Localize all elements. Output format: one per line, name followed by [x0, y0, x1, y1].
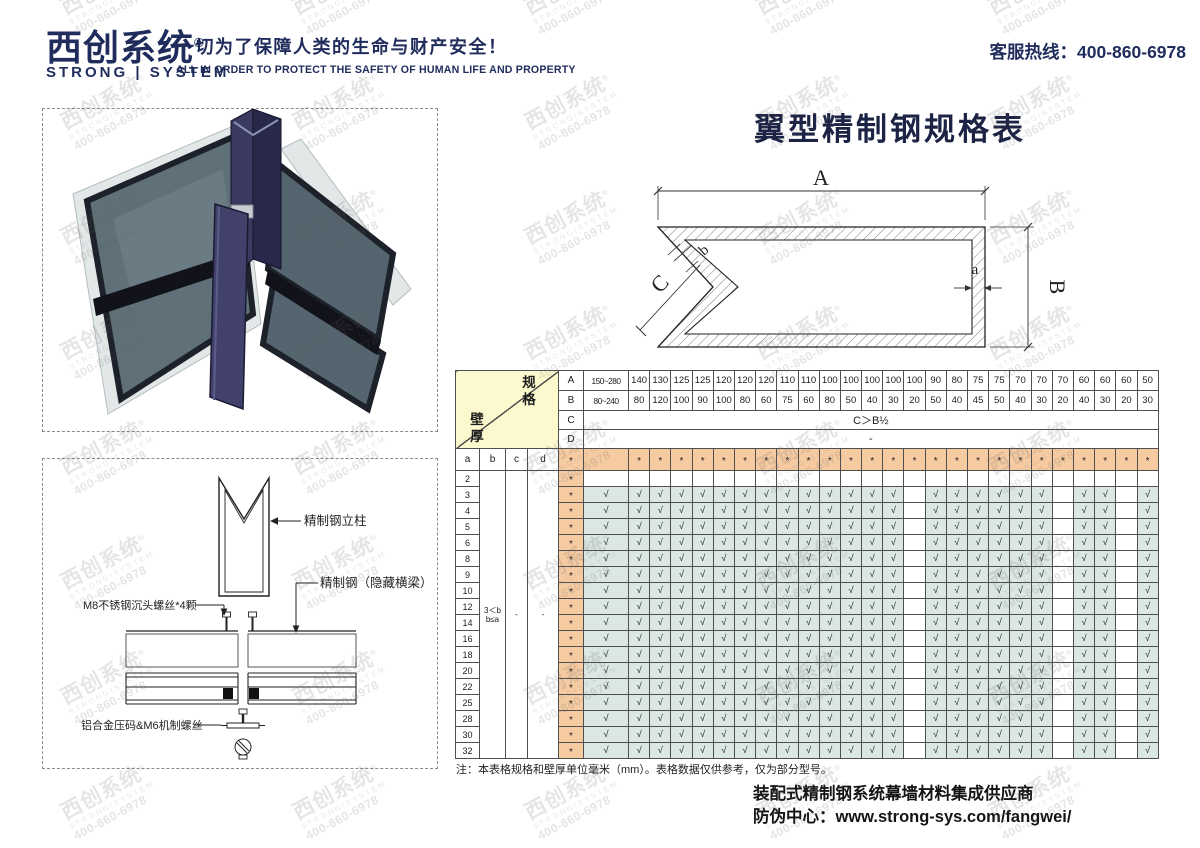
check-cell: √: [1137, 567, 1158, 583]
dim-B-value: 60: [798, 391, 819, 411]
row-label-B: B: [559, 391, 584, 411]
check-cell: √: [1095, 519, 1116, 535]
check-cell: √: [862, 583, 883, 599]
check-cell: √: [989, 519, 1010, 535]
check-cell: √: [1031, 743, 1052, 759]
check-cell: √: [671, 695, 692, 711]
check-cell: √: [777, 711, 798, 727]
empty-cell: [904, 615, 925, 631]
empty-cell: [1116, 567, 1137, 583]
check-cell: √: [650, 567, 671, 583]
dim-A-value: 50: [1137, 371, 1158, 391]
check-cell: √: [862, 535, 883, 551]
check-cell: √: [650, 551, 671, 567]
corner-wall-label: 壁厚: [469, 411, 485, 445]
check-cell: √: [883, 679, 904, 695]
check-cell: √: [862, 727, 883, 743]
check-cell: √: [862, 567, 883, 583]
check-cell: √: [1095, 583, 1116, 599]
check-cell: √: [1010, 503, 1031, 519]
dim-B-value: 20: [1052, 391, 1073, 411]
check-cell: √: [756, 503, 777, 519]
row-label-C: C: [559, 411, 584, 430]
check-cell: √: [756, 487, 777, 503]
check-cell: √: [692, 583, 713, 599]
check-cell: √: [713, 679, 734, 695]
check-cell: √: [629, 551, 650, 567]
check-cell: √: [1073, 551, 1094, 567]
check-cell: √: [883, 599, 904, 615]
check-cell: √: [1031, 679, 1052, 695]
check-cell: √: [925, 519, 946, 535]
check-cell: √: [713, 519, 734, 535]
dim-B-value: 40: [946, 391, 967, 411]
check-cell: √: [1095, 535, 1116, 551]
thickness-header: d: [528, 449, 559, 471]
check-cell: √: [1095, 727, 1116, 743]
check-cell: √: [819, 503, 840, 519]
check-cell: √: [584, 567, 629, 583]
check-cell: √: [819, 695, 840, 711]
check-cell: √: [1031, 535, 1052, 551]
dim-A-value: 120: [734, 371, 755, 391]
star-cell: *: [559, 535, 584, 551]
check-cell: √: [777, 695, 798, 711]
check-cell: √: [584, 679, 629, 695]
empty-cell: [1116, 583, 1137, 599]
check-cell: √: [883, 695, 904, 711]
empty-cell: [968, 471, 989, 487]
check-cell: √: [629, 679, 650, 695]
check-cell: √: [946, 711, 967, 727]
thickness-header: b: [480, 449, 506, 471]
check-cell: √: [968, 535, 989, 551]
footer-line2: 防伪中心：www.strong-sys.com/fangwei/: [753, 806, 1071, 829]
check-cell: √: [819, 615, 840, 631]
empty-cell: [692, 471, 713, 487]
empty-cell: [1116, 535, 1137, 551]
check-cell: √: [819, 647, 840, 663]
check-cell: √: [840, 679, 861, 695]
check-cell: √: [671, 503, 692, 519]
star-cell: *: [862, 449, 883, 471]
check-cell: √: [650, 743, 671, 759]
star-cell: *: [559, 487, 584, 503]
check-cell: √: [1095, 599, 1116, 615]
check-cell: √: [650, 711, 671, 727]
empty-cell: [904, 631, 925, 647]
check-cell: √: [584, 503, 629, 519]
dim-B-value: 20: [904, 391, 925, 411]
dim-A-value: 70: [1010, 371, 1031, 391]
check-cell: √: [925, 615, 946, 631]
check-cell: √: [692, 551, 713, 567]
check-cell: √: [756, 711, 777, 727]
check-cell: √: [946, 599, 967, 615]
check-cell: √: [1095, 615, 1116, 631]
watermark: 西创系统®STRONGISYSTEM400-860-6978: [58, 760, 162, 842]
check-cell: √: [1073, 663, 1094, 679]
label-screw: M8不锈钢沉头螺丝*4颗: [83, 599, 197, 612]
star-cell: *: [904, 449, 925, 471]
empty-cell: [1116, 679, 1137, 695]
check-cell: √: [1095, 695, 1116, 711]
check-cell: √: [862, 711, 883, 727]
dim-B-value: 80~240: [584, 391, 629, 411]
check-cell: √: [777, 551, 798, 567]
star-cell: *: [559, 449, 584, 471]
check-cell: √: [883, 727, 904, 743]
star-cell: *: [559, 503, 584, 519]
thickness-a-value: 28: [456, 711, 480, 727]
empty-cell: [1052, 599, 1073, 615]
star-cell: *: [559, 567, 584, 583]
empty-cell: [1095, 471, 1116, 487]
thickness-a-value: 2: [456, 471, 480, 487]
check-cell: √: [883, 583, 904, 599]
empty-cell: [1137, 471, 1158, 487]
check-cell: √: [968, 567, 989, 583]
empty-cell: [904, 743, 925, 759]
empty-cell: [734, 471, 755, 487]
star-cell: *: [925, 449, 946, 471]
check-cell: √: [734, 647, 755, 663]
check-cell: √: [734, 743, 755, 759]
d-constraint: -: [528, 471, 559, 759]
check-cell: √: [584, 663, 629, 679]
c-constraint: -: [506, 471, 528, 759]
watermark: 西创系统®STRONGISYSTEM400-860-6978: [290, 760, 394, 842]
dim-label-C: C: [645, 270, 673, 298]
check-cell: √: [584, 711, 629, 727]
check-cell: √: [1031, 727, 1052, 743]
empty-cell: [1031, 471, 1052, 487]
check-cell: √: [777, 743, 798, 759]
check-cell: √: [734, 535, 755, 551]
check-cell: √: [692, 599, 713, 615]
dim-A-value: 100: [840, 371, 861, 391]
check-cell: √: [840, 631, 861, 647]
star-cell: *: [946, 449, 967, 471]
dim-B-value: 80: [734, 391, 755, 411]
curtainwall-3d-illustration: [43, 109, 437, 431]
check-cell: √: [1095, 679, 1116, 695]
empty-cell: [1010, 471, 1031, 487]
check-cell: √: [968, 615, 989, 631]
empty-cell: [989, 471, 1010, 487]
check-cell: √: [584, 631, 629, 647]
star-cell: *: [629, 449, 650, 471]
check-cell: √: [1073, 615, 1094, 631]
check-cell: √: [1010, 535, 1031, 551]
check-cell: √: [840, 727, 861, 743]
slogan-en: ALL IN ORDER TO PROTECT THE SAFETY OF HU…: [176, 64, 576, 76]
dim-B-value: 30: [883, 391, 904, 411]
empty-cell: [904, 487, 925, 503]
empty-cell: [1052, 711, 1073, 727]
check-cell: √: [883, 647, 904, 663]
check-cell: √: [777, 727, 798, 743]
check-cell: √: [756, 647, 777, 663]
check-cell: √: [968, 631, 989, 647]
check-cell: √: [1031, 599, 1052, 615]
star-cell: *: [883, 449, 904, 471]
check-cell: √: [1095, 663, 1116, 679]
section-detail-drawing: 精制钢立柱 精制钢（隐藏横梁） M8不锈钢沉头螺丝*4颗: [43, 459, 437, 765]
dim-B-value: 80: [819, 391, 840, 411]
check-cell: √: [777, 519, 798, 535]
check-cell: √: [629, 615, 650, 631]
check-cell: √: [756, 679, 777, 695]
check-cell: √: [713, 695, 734, 711]
check-cell: √: [1095, 487, 1116, 503]
dim-A-value: 60: [1073, 371, 1094, 391]
check-cell: √: [734, 551, 755, 567]
dim-B-value: 40: [1073, 391, 1094, 411]
dim-A-value: 90: [925, 371, 946, 391]
check-cell: √: [713, 631, 734, 647]
check-cell: √: [968, 583, 989, 599]
dim-B-value: 30: [1137, 391, 1158, 411]
dim-A-value: 110: [798, 371, 819, 391]
slogan-cn: 一切为了保障人类的生命与财产安全！: [176, 33, 576, 59]
check-cell: √: [819, 663, 840, 679]
check-cell: √: [1010, 599, 1031, 615]
empty-cell: [584, 471, 629, 487]
check-cell: √: [1073, 679, 1094, 695]
check-cell: √: [584, 743, 629, 759]
empty-cell: [1052, 679, 1073, 695]
check-cell: √: [989, 535, 1010, 551]
check-cell: √: [756, 727, 777, 743]
star-cell: *: [559, 551, 584, 567]
empty-cell: [1052, 743, 1073, 759]
check-cell: √: [756, 535, 777, 551]
check-cell: √: [862, 615, 883, 631]
star-cell: *: [559, 647, 584, 663]
empty-cell: [1052, 583, 1073, 599]
check-cell: √: [925, 727, 946, 743]
check-cell: √: [1010, 615, 1031, 631]
check-cell: √: [692, 695, 713, 711]
check-cell: √: [650, 519, 671, 535]
check-cell: √: [692, 647, 713, 663]
dim-B-value: 100: [713, 391, 734, 411]
check-cell: √: [989, 743, 1010, 759]
thickness-a-value: 25: [456, 695, 480, 711]
section-detail-box: 精制钢立柱 精制钢（隐藏横梁） M8不锈钢沉头螺丝*4颗: [42, 458, 438, 769]
check-cell: √: [819, 599, 840, 615]
check-cell: √: [1137, 519, 1158, 535]
star-cell: *: [559, 727, 584, 743]
check-cell: √: [925, 711, 946, 727]
check-cell: √: [1010, 743, 1031, 759]
check-cell: √: [1010, 551, 1031, 567]
check-cell: √: [968, 679, 989, 695]
star-cell: *: [1116, 449, 1137, 471]
check-cell: √: [883, 615, 904, 631]
empty-cell: [1052, 727, 1073, 743]
star-cell: *: [989, 449, 1010, 471]
check-cell: √: [650, 727, 671, 743]
check-cell: √: [629, 663, 650, 679]
watermark: 西创系统®STRONGISYSTEM400-860-6978: [986, 0, 1090, 37]
check-cell: √: [840, 503, 861, 519]
check-cell: √: [692, 727, 713, 743]
empty-cell: [1116, 695, 1137, 711]
empty-cell: [904, 599, 925, 615]
check-cell: √: [798, 615, 819, 631]
check-cell: √: [777, 647, 798, 663]
dim-B-value: 60: [756, 391, 777, 411]
dim-label-A: A: [813, 165, 829, 190]
empty-cell: [1116, 631, 1137, 647]
check-cell: √: [713, 615, 734, 631]
empty-cell: [756, 471, 777, 487]
check-cell: √: [968, 503, 989, 519]
check-cell: √: [713, 647, 734, 663]
check-cell: √: [1010, 487, 1031, 503]
check-cell: √: [1031, 487, 1052, 503]
dim-A-value: 60: [1116, 371, 1137, 391]
row-label-A: A: [559, 371, 584, 391]
check-cell: √: [650, 599, 671, 615]
empty-cell: [904, 663, 925, 679]
dim-B-value: 40: [862, 391, 883, 411]
check-cell: √: [989, 599, 1010, 615]
check-cell: √: [883, 663, 904, 679]
thickness-a-value: 32: [456, 743, 480, 759]
star-cell: *: [777, 449, 798, 471]
check-cell: √: [584, 583, 629, 599]
check-cell: √: [989, 663, 1010, 679]
check-cell: √: [1137, 503, 1158, 519]
check-cell: √: [629, 567, 650, 583]
empty-cell: [1052, 535, 1073, 551]
check-cell: √: [692, 487, 713, 503]
dim-B-value: 20: [1116, 391, 1137, 411]
empty-cell: [1116, 551, 1137, 567]
empty-cell: [777, 471, 798, 487]
check-cell: √: [756, 519, 777, 535]
dim-B-value: 90: [692, 391, 713, 411]
check-cell: √: [862, 519, 883, 535]
check-cell: √: [946, 647, 967, 663]
watermark: 西创系统®STRONGISYSTEM400-860-6978: [754, 0, 858, 37]
check-cell: √: [968, 599, 989, 615]
check-cell: √: [671, 679, 692, 695]
check-cell: √: [1137, 695, 1158, 711]
check-cell: √: [1010, 663, 1031, 679]
check-cell: √: [756, 743, 777, 759]
empty-cell: [1116, 503, 1137, 519]
logo-cn-text: 西创系统: [46, 27, 194, 68]
empty-cell: [1116, 471, 1137, 487]
star-cell: *: [559, 663, 584, 679]
empty-cell: [904, 551, 925, 567]
thickness-a-value: 4: [456, 503, 480, 519]
check-cell: √: [840, 519, 861, 535]
dim-B-value: 120: [650, 391, 671, 411]
check-cell: √: [862, 743, 883, 759]
check-cell: √: [756, 615, 777, 631]
check-cell: √: [692, 503, 713, 519]
check-cell: √: [1031, 615, 1052, 631]
dim-label-a: a: [972, 262, 979, 278]
star-cell: *: [713, 449, 734, 471]
check-cell: √: [819, 551, 840, 567]
check-cell: √: [734, 679, 755, 695]
check-cell: √: [671, 551, 692, 567]
empty-cell: [862, 471, 883, 487]
check-cell: √: [1073, 647, 1094, 663]
check-cell: √: [629, 727, 650, 743]
check-cell: √: [777, 599, 798, 615]
check-cell: √: [734, 519, 755, 535]
empty-cell: [1073, 471, 1094, 487]
check-cell: √: [1031, 711, 1052, 727]
check-cell: √: [671, 727, 692, 743]
empty-cell: [671, 471, 692, 487]
check-cell: √: [734, 487, 755, 503]
check-cell: √: [629, 695, 650, 711]
check-cell: √: [883, 631, 904, 647]
check-cell: √: [777, 535, 798, 551]
check-cell: √: [777, 663, 798, 679]
check-cell: √: [946, 695, 967, 711]
empty-cell: [904, 647, 925, 663]
dim-A-value: 125: [692, 371, 713, 391]
check-cell: √: [1095, 711, 1116, 727]
illustration-3d-box: [42, 108, 438, 432]
label-mullion: 精制钢立柱: [304, 513, 367, 528]
check-cell: √: [671, 663, 692, 679]
check-cell: √: [925, 647, 946, 663]
check-cell: √: [777, 615, 798, 631]
empty-cell: [1052, 615, 1073, 631]
row-label-D: D: [559, 430, 584, 449]
check-cell: √: [734, 503, 755, 519]
check-cell: √: [798, 679, 819, 695]
dim-B-value: 45: [968, 391, 989, 411]
dim-B-value: 40: [1010, 391, 1031, 411]
check-cell: √: [734, 631, 755, 647]
check-cell: √: [946, 519, 967, 535]
star-cell: *: [840, 449, 861, 471]
dim-A-value: 70: [1031, 371, 1052, 391]
check-cell: √: [629, 583, 650, 599]
star-cell: *: [1031, 449, 1052, 471]
check-cell: √: [946, 503, 967, 519]
check-cell: √: [798, 647, 819, 663]
star-cell: *: [559, 583, 584, 599]
empty-cell: [1052, 487, 1073, 503]
check-cell: √: [862, 503, 883, 519]
check-cell: √: [692, 567, 713, 583]
empty-cell: [650, 471, 671, 487]
empty-cell: [629, 471, 650, 487]
check-cell: √: [692, 663, 713, 679]
check-cell: √: [925, 487, 946, 503]
check-cell: √: [756, 583, 777, 599]
check-cell: √: [883, 711, 904, 727]
check-cell: √: [713, 551, 734, 567]
check-cell: √: [862, 679, 883, 695]
check-cell: √: [671, 535, 692, 551]
check-cell: √: [989, 567, 1010, 583]
check-cell: √: [756, 599, 777, 615]
empty-cell: [946, 471, 967, 487]
